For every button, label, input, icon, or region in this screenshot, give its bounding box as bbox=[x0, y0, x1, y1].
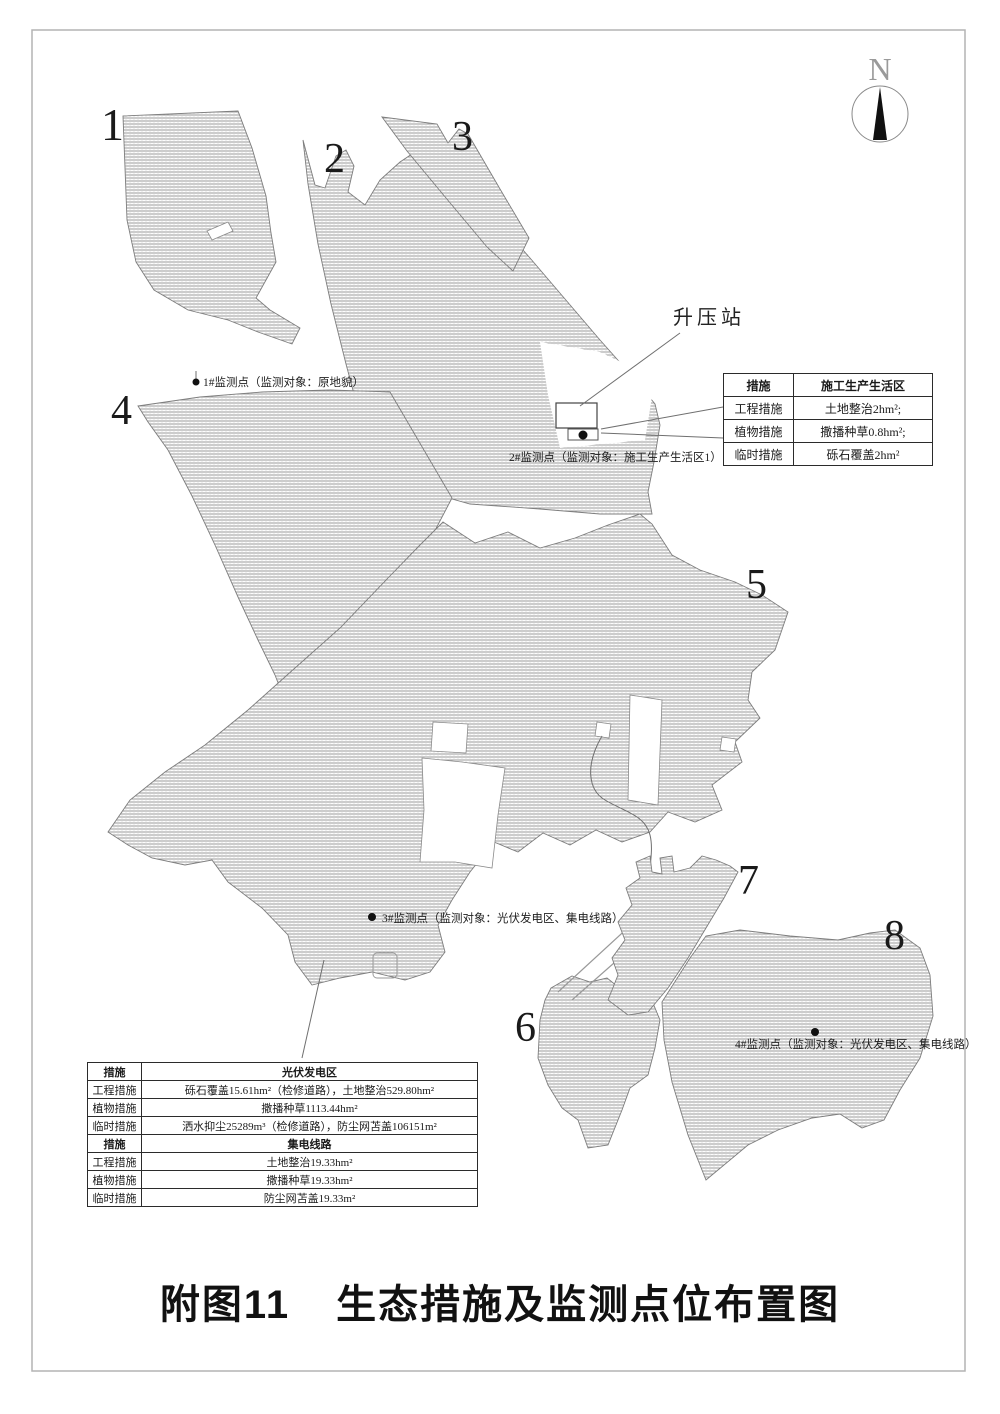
area-header-cell: 光伏发电区 bbox=[142, 1063, 478, 1081]
measure-cell: 工程措施 bbox=[724, 397, 794, 420]
value-cell: 撒播种草19.33hm² bbox=[142, 1171, 478, 1189]
region-6-label: 6 bbox=[515, 1005, 536, 1051]
pv-collector-measures-table: 措施 光伏发电区 工程措施 砾石覆盖15.61hm²（检修道路），土地整治529… bbox=[87, 1062, 478, 1207]
monitor-point-3-dot bbox=[368, 913, 376, 921]
measure-cell: 临时措施 bbox=[88, 1189, 142, 1207]
region-8-area bbox=[662, 930, 933, 1180]
measure-cell: 临时措施 bbox=[88, 1117, 142, 1135]
value-cell: 砾石覆盖15.61hm²（检修道路），土地整治529.80hm² bbox=[142, 1081, 478, 1099]
region-2-label: 2 bbox=[324, 136, 345, 182]
booster-station-label: 升压站 bbox=[673, 306, 745, 329]
value-cell: 土地整治19.33hm² bbox=[142, 1153, 478, 1171]
north-letter: N bbox=[868, 51, 891, 87]
measure-header-cell: 措施 bbox=[88, 1135, 142, 1153]
measure-header-cell: 措施 bbox=[724, 374, 794, 397]
region-4-label: 4 bbox=[111, 388, 132, 434]
figure-name: 生态措施及监测点位布置图 bbox=[336, 1283, 840, 1327]
region-5-bay bbox=[420, 758, 505, 868]
region-1-label: 1 bbox=[101, 99, 124, 150]
north-arrow: N bbox=[852, 51, 908, 142]
station-measures-table: 措施 施工生产生活区 工程措施 土地整治2hm²; 植物措施 撒播种草0.8hm… bbox=[723, 373, 933, 466]
region-5-slot bbox=[628, 695, 662, 805]
measure-cell: 植物措施 bbox=[88, 1171, 142, 1189]
figure-title: 附图11生态措施及监测点位布置图 bbox=[0, 1272, 1000, 1330]
drawing-page: 1 2 3 4 5 6 7 8 升压站 1#监测点（监测对象：原地貌） 2#监测… bbox=[0, 0, 1000, 1414]
region-8-label: 8 bbox=[884, 913, 905, 959]
region-7-label: 7 bbox=[738, 858, 759, 904]
value-cell: 防尘网苫盖19.33m² bbox=[142, 1189, 478, 1207]
monitor-point-1-dot bbox=[193, 379, 200, 386]
measure-cell: 临时措施 bbox=[724, 443, 794, 466]
monitor-point-1-label: 1#监测点（监测对象：原地貌） bbox=[203, 375, 364, 389]
region-5-label: 5 bbox=[746, 562, 767, 608]
monitor-point-4-dot bbox=[811, 1028, 819, 1036]
area-header-cell: 集电线路 bbox=[142, 1135, 478, 1153]
region-3-label: 3 bbox=[452, 114, 473, 160]
measure-cell: 植物措施 bbox=[88, 1099, 142, 1117]
measure-header-cell: 措施 bbox=[88, 1063, 142, 1081]
region-1-area bbox=[123, 111, 300, 344]
region-5-hole-a bbox=[431, 722, 468, 753]
measure-cell: 工程措施 bbox=[88, 1081, 142, 1099]
monitor-point-4-label: 4#监测点（监测对象：光伏发电区、集电线路） bbox=[735, 1037, 977, 1051]
monitor-point-3-label: 3#监测点（监测对象：光伏发电区、集电线路） bbox=[382, 911, 624, 925]
measure-cell: 工程措施 bbox=[88, 1153, 142, 1171]
value-cell: 撒播种草0.8hm²; bbox=[794, 420, 933, 443]
area-header-cell: 施工生产生活区 bbox=[794, 374, 933, 397]
booster-station-building bbox=[556, 403, 597, 428]
figure-number: 附图11 bbox=[160, 1283, 290, 1327]
measure-cell: 植物措施 bbox=[724, 420, 794, 443]
value-cell: 砾石覆盖2hm² bbox=[794, 443, 933, 466]
value-cell: 撒播种草1113.44hm² bbox=[142, 1099, 478, 1117]
monitor-point-2-label: 2#监测点（监测对象：施工生产生活区1） bbox=[509, 450, 722, 464]
region-5-hole-c bbox=[720, 737, 736, 752]
value-cell: 土地整治2hm²; bbox=[794, 397, 933, 420]
value-cell: 洒水抑尘25289m³（检修道路），防尘网苫盖106151m² bbox=[142, 1117, 478, 1135]
region-5-hole-b bbox=[595, 722, 611, 738]
monitor-point-2-dot bbox=[579, 431, 588, 440]
north-needle bbox=[873, 87, 887, 140]
